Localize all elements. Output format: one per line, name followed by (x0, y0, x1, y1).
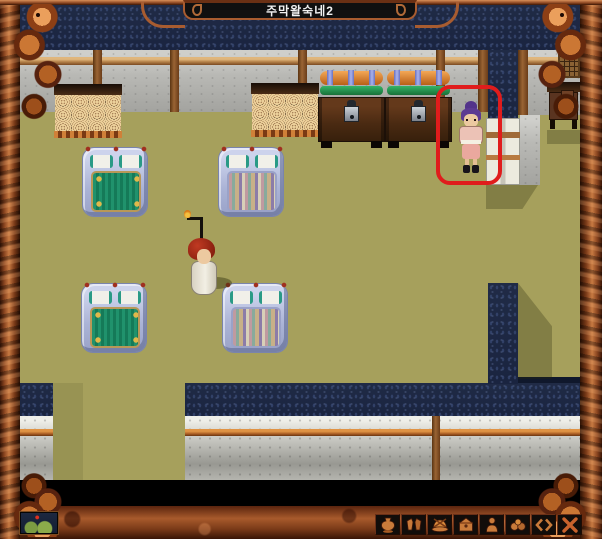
window-title: 주막왈숙네2 (266, 2, 334, 19)
storage-chest (318, 70, 385, 148)
plaque-dragon-mark-icon (192, 4, 202, 16)
front-wall-post (432, 416, 440, 480)
dragon-eye (560, 13, 564, 17)
character-button[interactable] (479, 514, 504, 535)
bed-knobs (85, 146, 147, 152)
npc-highlight-box (436, 85, 502, 185)
pillow (255, 155, 278, 168)
bedding-strap (348, 70, 354, 85)
exchange-arrows-icon (534, 516, 554, 534)
wall-rail (20, 57, 488, 65)
desk-shadow (547, 130, 580, 144)
dragon-carving-icon (530, 4, 588, 132)
bedding-strap (415, 70, 421, 85)
void-bottom (20, 480, 580, 506)
outside-band (20, 383, 53, 416)
player-face (197, 249, 211, 264)
pillow (119, 155, 142, 168)
chest-foot (371, 141, 382, 148)
plaque-dragon-mark-icon (396, 4, 406, 16)
bed-green (81, 283, 147, 353)
bed-green (82, 147, 148, 217)
bed-knobs (84, 282, 146, 288)
lamp-flame-icon (184, 210, 191, 218)
dresser-top (251, 83, 319, 94)
floor-channel (488, 283, 518, 384)
dragon-carving-icon (12, 4, 70, 132)
door-post (518, 50, 528, 120)
bedding-roll-green (320, 86, 383, 95)
floor-shadow (53, 383, 83, 480)
armor-icon (404, 516, 424, 534)
pillow (118, 291, 141, 304)
bedding-strap (436, 70, 442, 85)
pillow (90, 155, 113, 168)
armor-button[interactable] (401, 514, 426, 535)
front-wall-rail (20, 429, 53, 436)
pillow (230, 291, 253, 304)
pillow (89, 291, 112, 304)
bundle-button[interactable] (505, 514, 530, 535)
game-window: 주막왈숙네2 (0, 0, 602, 539)
chest-foot (321, 141, 332, 148)
front-wall-left (20, 416, 53, 480)
close-button[interactable] (557, 514, 582, 535)
food-button[interactable] (427, 514, 452, 535)
bedding-strap (394, 70, 400, 85)
player-character (180, 205, 232, 297)
chest-foot (388, 141, 399, 148)
pillow (259, 291, 282, 304)
dresser (251, 83, 319, 137)
game-viewport[interactable] (20, 5, 580, 506)
bed-knobs (225, 282, 287, 288)
bedding-strap (327, 70, 333, 85)
bedding-strap (369, 70, 375, 85)
player-robe (191, 261, 217, 295)
front-wall-right (185, 416, 580, 480)
outside-band (185, 383, 580, 416)
satchel-icon (456, 516, 476, 534)
bundle-icon (508, 516, 528, 534)
close-x-icon (560, 516, 580, 534)
mattress (91, 171, 141, 212)
mattress (90, 307, 140, 348)
title-plaque: 주막왈숙네2 (183, 0, 417, 20)
person-icon (482, 516, 502, 534)
satchel-button[interactable] (453, 514, 478, 535)
chest-lock (344, 106, 359, 122)
mattress (227, 171, 277, 212)
vessel-icon (378, 516, 398, 534)
mattress (231, 307, 281, 348)
dragon-eye (36, 13, 40, 17)
dresser-base (54, 131, 122, 138)
exchange-button[interactable] (531, 514, 556, 535)
front-wall-rail (185, 429, 580, 436)
food-plate-icon (430, 516, 450, 534)
vessel-button[interactable] (375, 514, 400, 535)
wall-post (170, 50, 179, 112)
bed-knobs (221, 146, 283, 152)
dresser-base (251, 130, 319, 137)
dresser-drawers (252, 94, 318, 130)
chest-lock (411, 106, 426, 122)
minimap-preview[interactable] (20, 512, 58, 534)
pillow (226, 155, 249, 168)
